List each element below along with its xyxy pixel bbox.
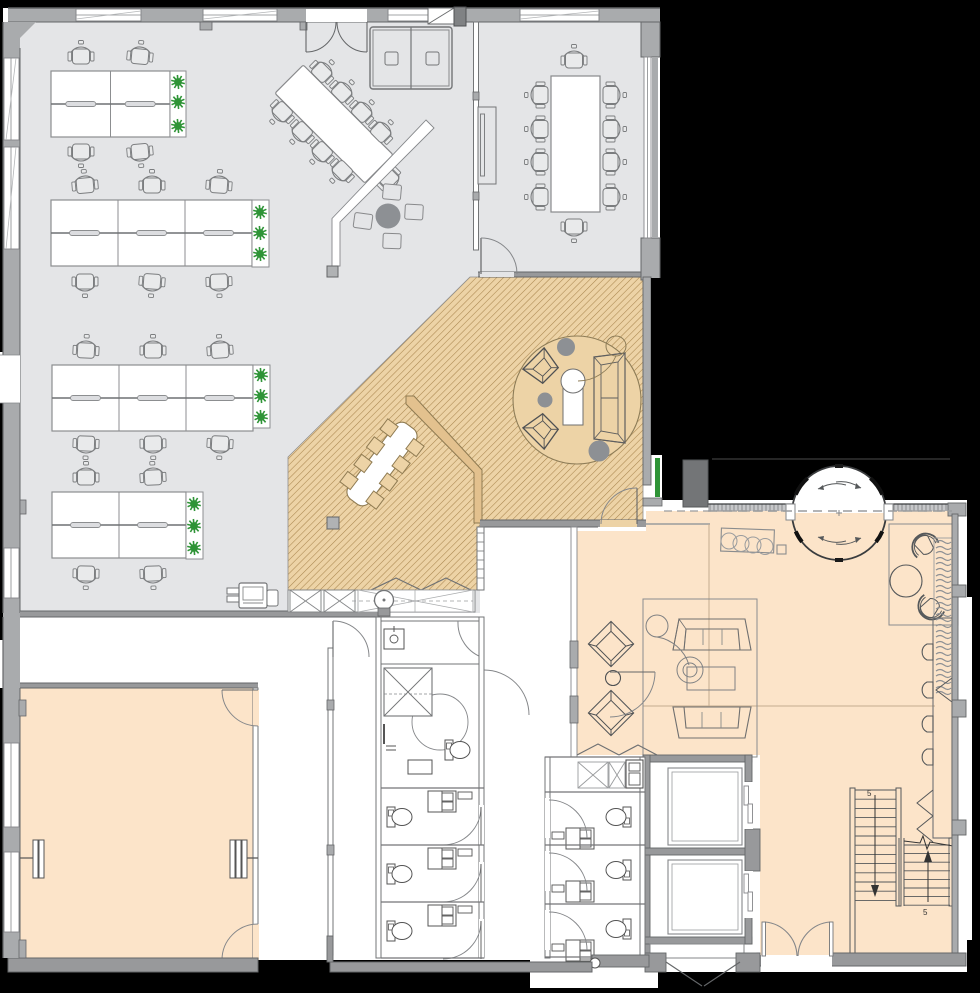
svg-text:5: 5 bbox=[867, 789, 872, 798]
svg-text:5: 5 bbox=[923, 908, 928, 917]
